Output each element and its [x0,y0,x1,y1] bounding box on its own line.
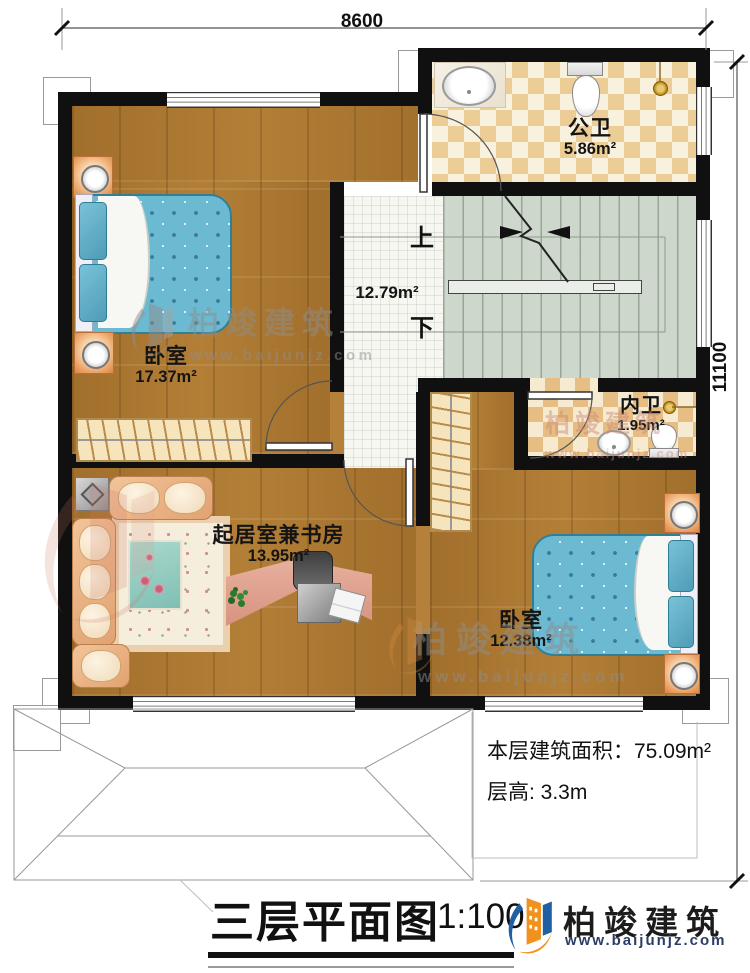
room-name: 公卫 [530,118,650,141]
lamp-icon [670,662,698,690]
room-area: 5.86m² [530,141,650,159]
window-bath-right [696,87,712,155]
flower-icon [154,584,164,594]
wall-ensuite-bottom [514,456,710,470]
nightstand [664,493,700,533]
brand-logo-icon [505,892,559,956]
railing-cap [593,283,615,291]
toilet-tank [567,62,603,76]
wall-bedroom-left-right [330,182,344,392]
wall-mid-vertical-upper [416,392,430,526]
room-area: 12.38m² [466,633,576,651]
room-area: 17.37m² [106,369,226,387]
dimension-width: 8600 [322,11,402,33]
title-underline-thin [208,966,514,968]
speaker-box [75,477,109,511]
nightstand [664,654,700,694]
title-underline-thick [208,952,514,958]
label-bedroom-right: 卧室 12.38m² [466,610,576,650]
floor-annotations: 本层建筑面积：75.09m² 层高: 3.3m [487,731,711,813]
flower-icon [140,576,150,586]
flower-icon [146,554,153,561]
wall-stairs-bottom-east [598,378,710,392]
coffee-table-rug [128,540,182,610]
sofa-left [72,518,116,646]
sofa-cushion [79,603,111,639]
speaker-cone-icon [80,482,104,506]
window-living-bottom [133,696,355,712]
room-area: 12.79m² [347,284,427,302]
wall-mid-vertical-lower [416,634,430,696]
pillow [79,264,107,322]
nightstand [73,156,113,198]
room-name: 卧室 [106,346,226,369]
wall-bath-left [418,48,432,114]
sofa-corner [72,644,130,688]
label-bedroom-left: 卧室 17.37m² [106,346,226,386]
floor-plan-page: 8600 11100 公卫 5.86m² 卧室 17.37m² 12.79m² … [0,0,750,973]
dimension-depth: 11100 [710,317,732,417]
ensuite-door-threshold [530,378,598,392]
room-name: 起居室兼书房 [196,525,361,548]
floor-area-text: 本层建筑面积：75.09m² [487,731,711,772]
pillow [668,596,694,648]
stair-up-label: 上 [410,218,434,253]
wall-bath-top [418,48,710,62]
window-bedroom-left-top [167,92,320,108]
wall-stairs-bottom-west [418,378,530,392]
sofa-cushion [81,650,121,682]
room-name: 卧室 [466,610,576,633]
plant-icon [230,590,237,597]
floor-height-text: 层高: 3.3m [487,772,711,813]
lamp-icon [670,501,698,529]
public-bath-door-threshold [418,114,432,196]
stair-railing [448,280,642,294]
shower-head-icon [653,81,668,96]
sofa-cushion [118,482,160,514]
toilet-tank [649,448,679,458]
pillow [79,202,107,260]
window-bedroom-right-bottom [485,696,643,712]
pier-bottom-left-b [13,705,61,751]
label-public-bath: 公卫 5.86m² [530,118,650,158]
lamp-icon [81,165,109,193]
label-ensuite-bath: 内卫 1.95m² [581,396,701,434]
bedroom-left-doorway-floor [330,392,344,454]
bedroom-left-floor-top [72,106,432,182]
wall-left [58,92,72,710]
title-block: 三层平面图 1:100 柏竣建筑 www.baijunjz.com [0,880,750,973]
sink-icon [442,66,496,106]
room-area: 1.95m² [581,418,701,434]
label-hall: 12.79m² [347,284,427,302]
wall-ensuite-left [514,392,528,456]
bedroom-right-doorway-floor [416,526,430,634]
wall-bath-bottom [432,182,710,196]
room-name: 内卫 [581,396,701,418]
room-area: 13.95m² [196,548,361,566]
wardrobe-bedroom-left [76,418,252,462]
sofa-top [109,476,213,520]
sink-icon [597,430,631,456]
stair-down-label: 下 [410,308,434,343]
wardrobe-bedroom-right [430,392,472,532]
sofa-cushion [79,525,111,561]
brand-url: www.baijunjz.com [565,932,726,949]
plan-title: 三层平面图 [210,886,440,950]
label-living-study: 起居室兼书房 13.95m² [196,525,361,565]
sofa-cushion [79,564,111,600]
sofa-cushion [164,482,206,514]
pillow [668,540,694,592]
